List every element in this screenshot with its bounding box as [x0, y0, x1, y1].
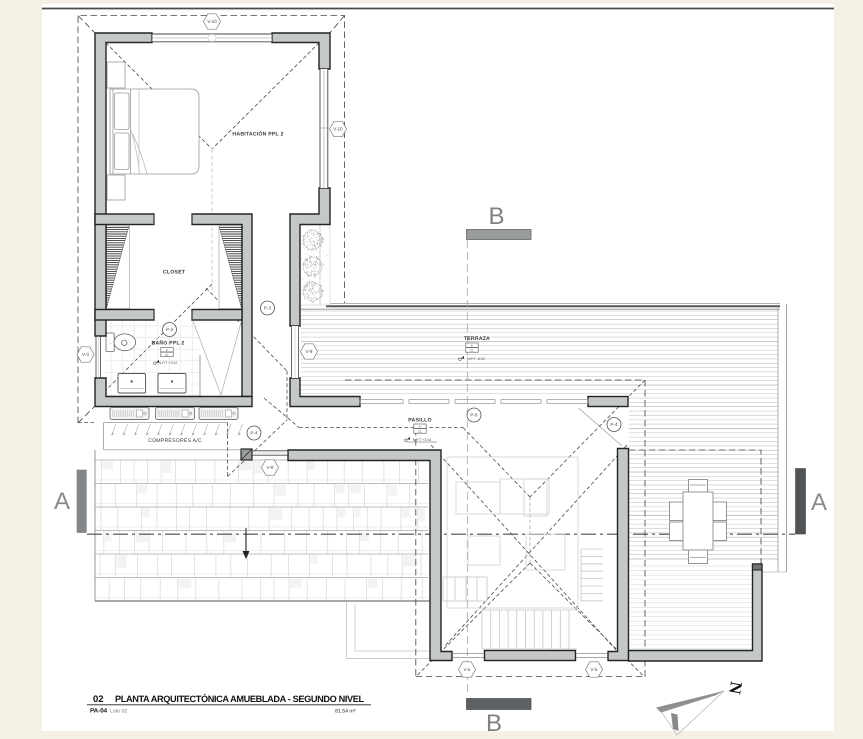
svg-text:B: B — [486, 710, 502, 737]
svg-text:A: A — [54, 488, 70, 515]
svg-text:V-5: V-5 — [591, 667, 598, 672]
svg-text:V-10: V-10 — [207, 19, 217, 24]
svg-text:P-4: P-4 — [250, 431, 258, 436]
svg-text:Lote 02: Lote 02 — [110, 709, 127, 715]
svg-text:V-3: V-3 — [82, 352, 89, 357]
svg-text:V-9: V-9 — [306, 349, 313, 354]
svg-text:P-3: P-3 — [264, 306, 272, 311]
svg-text:N.P.T +3.52: N.P.T +3.52 — [159, 361, 178, 365]
svg-text:A: A — [811, 489, 827, 516]
svg-text:BAÑO PPL 2: BAÑO PPL 2 — [151, 340, 184, 347]
svg-text:81.54 m²: 81.54 m² — [335, 709, 356, 715]
svg-text:P: P — [471, 344, 473, 348]
svg-text:P-4: P-4 — [610, 422, 618, 427]
svg-text:TERRAZA: TERRAZA — [464, 336, 490, 342]
svg-text:P-6: P-6 — [470, 413, 478, 418]
svg-text:PASILLO: PASILLO — [408, 418, 432, 424]
svg-text:P: P — [419, 425, 421, 429]
svg-text:+: + — [109, 342, 111, 346]
svg-text:CL: CL — [418, 429, 422, 433]
svg-text:N.P.T -0.52: N.P.T -0.52 — [467, 357, 485, 361]
svg-text:PLANTA ARQUITECTÓNICA AMUEBLAD: PLANTA ARQUITECTÓNICA AMUEBLADA - SEGUND… — [115, 693, 365, 704]
svg-text:N.P.T +3.54: N.P.T +3.54 — [413, 438, 432, 442]
svg-text:P: P — [166, 348, 168, 352]
svg-text:V-5: V-5 — [464, 667, 471, 672]
svg-text:V-10: V-10 — [333, 127, 343, 132]
svg-text:P-3: P-3 — [166, 327, 174, 332]
svg-text:HABITACIÓN PPL 2: HABITACIÓN PPL 2 — [232, 131, 283, 138]
svg-text:PA-04: PA-04 — [90, 708, 108, 715]
svg-text:CL: CL — [470, 348, 474, 352]
svg-text:B: B — [488, 203, 504, 230]
svg-text:CLOSET: CLOSET — [163, 270, 186, 276]
svg-text:CL: CL — [165, 353, 169, 357]
svg-text:02: 02 — [93, 694, 104, 705]
svg-text:COMPRESORES A/C: COMPRESORES A/C — [148, 438, 202, 444]
svg-text:V-8: V-8 — [267, 465, 274, 470]
